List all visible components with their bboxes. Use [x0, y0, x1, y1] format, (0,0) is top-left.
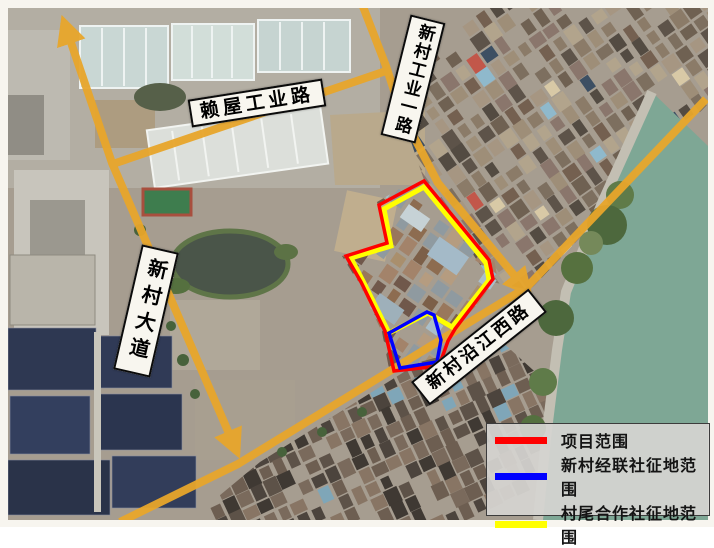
- alley: [94, 332, 101, 512]
- legend-item-cunwei: 村尾合作社征地范围: [495, 500, 701, 548]
- legend-item-xincun: 新村经联社征地范围: [495, 452, 701, 500]
- legend-color-bar-yellow: [495, 521, 547, 528]
- legend-label-cunwei: 村尾合作社征地范围: [561, 500, 701, 548]
- solar-panel-roofs: [8, 328, 196, 515]
- aerial-map: 新村工业一路 赖屋工业路 新村大道 新村沿江西路 项目范围 新村经联社征地范围 …: [0, 0, 714, 527]
- small-pond: [134, 83, 186, 111]
- sports-court: [143, 189, 191, 215]
- legend-label-project: 项目范围: [561, 428, 629, 452]
- legend: 项目范围 新村经联社征地范围 村尾合作社征地范围: [486, 423, 710, 516]
- legend-color-bar-blue: [495, 473, 547, 480]
- legend-item-project: 项目范围: [495, 428, 701, 452]
- pond-vegetation: [274, 244, 298, 260]
- legend-color-bar-red: [495, 437, 547, 444]
- legend-label-xincun: 新村经联社征地范围: [561, 452, 701, 500]
